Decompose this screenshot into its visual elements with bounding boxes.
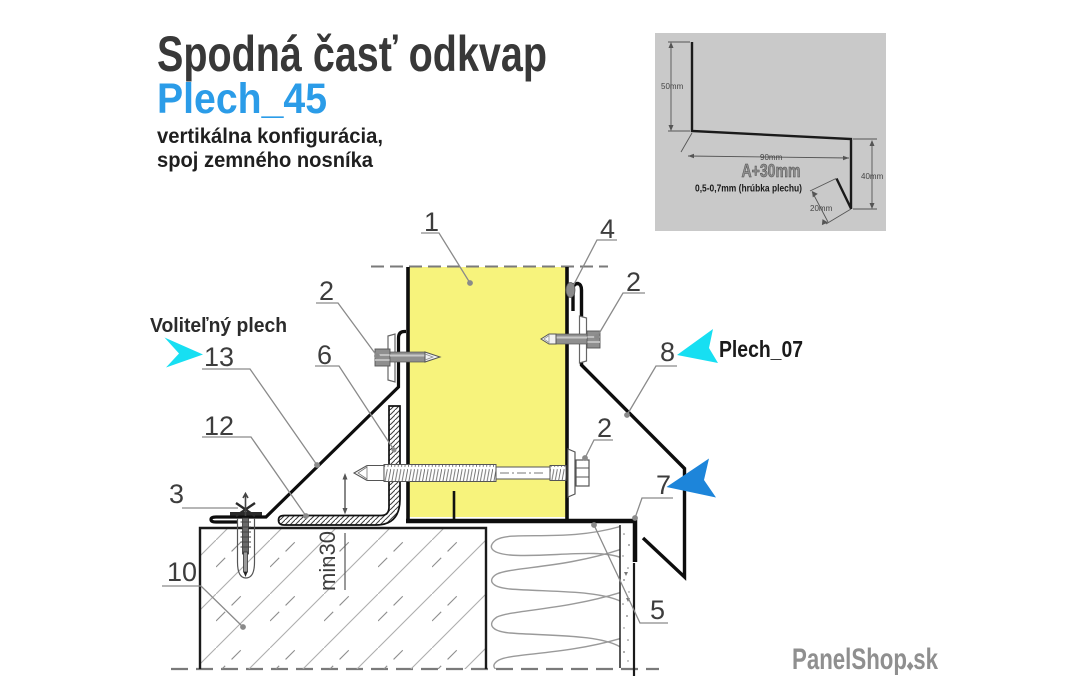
svg-text:2: 2 bbox=[319, 276, 334, 306]
svg-text:2: 2 bbox=[597, 413, 612, 443]
svg-text:8: 8 bbox=[660, 337, 675, 367]
svg-text:Spodná časť odkvap: Spodná časť odkvap bbox=[157, 26, 547, 82]
svg-text:10: 10 bbox=[167, 557, 197, 587]
svg-text:A+30mm: A+30mm bbox=[742, 161, 801, 181]
svg-text:Voliteľný plech: Voliteľný plech bbox=[150, 315, 287, 337]
svg-text:7: 7 bbox=[656, 470, 671, 500]
svg-text:Plech_45: Plech_45 bbox=[157, 75, 327, 123]
svg-text:12: 12 bbox=[204, 411, 234, 441]
svg-text:min30: min30 bbox=[315, 531, 340, 591]
svg-text:Plech_07: Plech_07 bbox=[719, 336, 803, 362]
svg-text:3: 3 bbox=[169, 479, 184, 509]
svg-text:2: 2 bbox=[626, 267, 641, 297]
svg-text:PanelShop◆sk: PanelShop◆sk bbox=[792, 643, 938, 676]
svg-text:vertikálna konfigurácia,: vertikálna konfigurácia, bbox=[157, 125, 383, 148]
svg-text:0,5-0,7mm (hrúbka plechu): 0,5-0,7mm (hrúbka plechu) bbox=[695, 183, 802, 195]
svg-text:spoj zemného nosníka: spoj zemného nosníka bbox=[157, 149, 373, 172]
svg-text:40mm: 40mm bbox=[861, 172, 884, 181]
svg-text:5: 5 bbox=[650, 595, 665, 625]
svg-text:1: 1 bbox=[424, 207, 439, 237]
svg-text:20mm: 20mm bbox=[810, 204, 833, 213]
svg-text:50mm: 50mm bbox=[661, 82, 684, 91]
svg-text:4: 4 bbox=[600, 214, 615, 244]
svg-text:6: 6 bbox=[317, 340, 332, 370]
svg-text:13: 13 bbox=[204, 342, 234, 372]
